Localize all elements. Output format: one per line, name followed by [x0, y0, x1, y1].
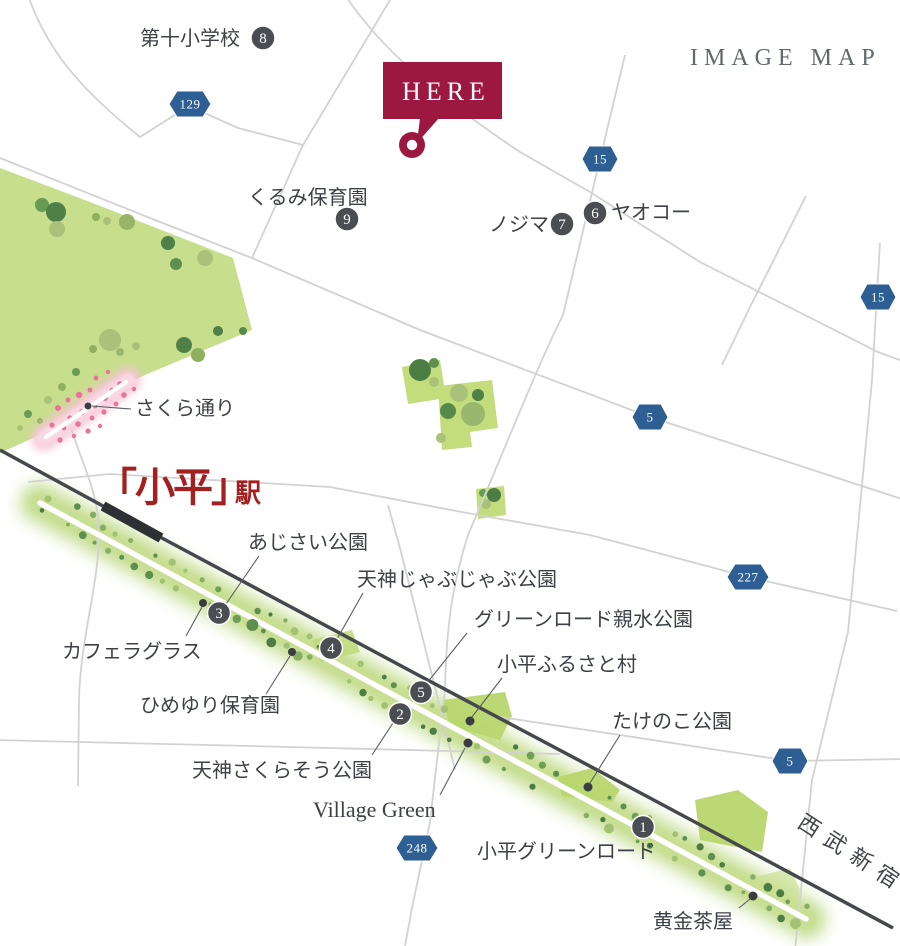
badge-number: 6 — [591, 206, 599, 222]
tree — [213, 326, 223, 336]
pin-ring-hole — [407, 140, 417, 150]
here-marker: HERE — [383, 62, 502, 158]
tree — [191, 348, 205, 362]
tree — [436, 433, 446, 443]
sakura-dot — [90, 416, 95, 421]
poi-dot-village-green — [464, 739, 473, 748]
badge-number: 9 — [343, 212, 351, 228]
route-shield-15a: 15 — [582, 146, 618, 172]
band-tree — [430, 703, 435, 708]
band-tree — [153, 554, 157, 558]
band-tree — [79, 531, 87, 539]
band-tree — [93, 541, 97, 545]
band-tree — [764, 883, 773, 892]
badge-number: 1 — [639, 820, 647, 836]
band-tree — [307, 654, 313, 660]
leader-line — [266, 656, 290, 694]
poi-label-tenjin-sakuraso-park: 天神さくらそう公園 — [192, 759, 372, 782]
tree — [429, 358, 439, 368]
band-tree — [359, 689, 366, 696]
band-tree — [131, 563, 139, 571]
labels: 第十小学校 くるみ保育園 ノジマ ヤオコー さくら通り あじさい公園 天神じゃぶ… — [62, 27, 900, 933]
poi-label-ajisai-park: あじさい公園 — [248, 532, 368, 554]
sakura-dot — [85, 428, 90, 433]
band-tree — [173, 585, 179, 591]
route-shield-129: 129 — [169, 91, 211, 117]
route-shield-5a: 5 — [632, 404, 668, 430]
band-tree — [266, 638, 276, 648]
image-map: 129 15 15 5 227 5 248 — [0, 0, 900, 946]
poi-label-kurumi-nursery: くるみ保育園 — [248, 186, 368, 209]
sakura-dot — [49, 422, 54, 427]
tree — [119, 214, 135, 230]
poi-label-ogon-chaya: 黄金茶屋 — [653, 910, 733, 933]
band-tree — [421, 724, 426, 729]
band-tree — [777, 915, 785, 923]
band-tree — [246, 619, 258, 631]
band-tree — [430, 728, 437, 735]
band-tree — [502, 767, 506, 771]
sakura-dot — [88, 388, 93, 393]
band-tree — [105, 548, 111, 554]
shield-number: 5 — [647, 410, 654, 425]
sakura-dot — [121, 392, 127, 398]
tree — [72, 368, 80, 376]
band-tree — [291, 627, 299, 635]
badge-1: 1 — [632, 816, 655, 839]
band-tree — [368, 696, 373, 701]
station-suffix: 駅 — [235, 479, 261, 508]
badge-number: 5 — [417, 685, 425, 701]
band-tree — [608, 796, 612, 800]
poi-label-himeyuri-nursery: ひめゆり保育園 — [140, 694, 280, 717]
poi-dot-cafe — [199, 599, 207, 607]
band-tree — [160, 579, 165, 584]
band-tree — [529, 784, 535, 790]
small-parks — [402, 358, 506, 519]
band-tree — [74, 503, 81, 510]
band-tree — [268, 612, 272, 616]
band-tree — [621, 804, 627, 810]
band-tree — [474, 743, 480, 749]
street-label-kodaira-green-road: 小平グリーンロード — [477, 840, 656, 863]
tree — [89, 345, 97, 353]
tree — [197, 250, 213, 266]
band-tree — [112, 532, 117, 537]
poi-dot-takenoko — [584, 783, 593, 792]
shield-number: 227 — [738, 570, 759, 585]
tree — [44, 396, 52, 404]
poi-label-tenjin-jabujabu-park: 天神じゃぶじゃぶ公園 — [357, 568, 557, 591]
sakura-dot — [72, 434, 76, 438]
tree — [99, 329, 121, 351]
band-tree — [698, 869, 705, 876]
band-tree — [100, 525, 106, 531]
shield-number: 129 — [180, 97, 201, 112]
badge-number: 3 — [215, 606, 223, 622]
badge-3: 3 — [208, 602, 231, 625]
tree — [472, 389, 484, 401]
band-tree — [750, 874, 756, 880]
badge-5: 5 — [410, 681, 433, 704]
tree — [116, 348, 124, 356]
badge-6: 6 — [583, 201, 607, 225]
badge-number: 7 — [558, 217, 566, 233]
band-tree — [382, 675, 387, 680]
band-tree — [697, 843, 704, 850]
band-tree — [790, 918, 801, 929]
map-canvas: 129 15 15 5 227 5 248 — [0, 0, 900, 946]
band-tree — [604, 824, 614, 834]
route-shield-227: 227 — [727, 564, 769, 590]
band-tree — [233, 615, 241, 623]
tree — [49, 221, 65, 237]
poi-label-cafe-lagrass: カフェラグラス — [62, 640, 202, 663]
band-tree — [776, 889, 784, 897]
route-shield-5b: 5 — [772, 748, 808, 774]
badge-8: 8 — [251, 26, 275, 50]
road — [28, 0, 303, 145]
band-tree — [168, 559, 175, 566]
tree — [409, 359, 431, 381]
poi-dot-sakura — [85, 403, 92, 410]
band-tree — [682, 836, 687, 841]
sakura-dot — [57, 437, 62, 442]
sakura-dot — [114, 402, 119, 407]
tree — [161, 236, 175, 250]
band-tree — [708, 853, 715, 860]
band-tree — [90, 512, 96, 518]
tree — [58, 383, 66, 391]
band-tree — [553, 771, 559, 777]
band-tree — [719, 862, 725, 868]
badge-2: 2 — [389, 703, 412, 726]
band-tree — [483, 756, 491, 764]
tree — [487, 488, 501, 502]
poi-label-village-green: Village Green — [313, 797, 436, 822]
tree — [17, 425, 23, 431]
poi-label-kodaira-furusato-village: 小平ふるさと村 — [497, 653, 637, 676]
band-tree — [66, 523, 70, 527]
band-tree — [391, 682, 397, 688]
band-tree — [261, 629, 266, 634]
band-tree — [804, 904, 809, 909]
band-tree — [672, 831, 678, 837]
band-tree — [45, 496, 52, 503]
band-tree — [200, 577, 205, 582]
band-tree — [725, 884, 732, 891]
band-tree — [119, 555, 124, 560]
sakura-dot — [106, 370, 110, 374]
tree — [176, 337, 192, 353]
poi-label-yaoko: ヤオコー — [611, 202, 691, 224]
station-name: 「小平」 — [97, 465, 249, 510]
band-tree — [357, 661, 363, 667]
tree — [103, 217, 111, 225]
band-tree — [283, 618, 287, 622]
badge-number: 8 — [259, 31, 267, 47]
shield-number: 15 — [593, 152, 607, 167]
tree — [46, 202, 66, 222]
band-tree — [347, 679, 351, 683]
band-tree — [584, 813, 589, 818]
tree — [450, 384, 468, 402]
band-tree — [672, 856, 678, 862]
sakura-dot — [66, 398, 71, 403]
shield-number: 248 — [407, 841, 428, 856]
sakura-dot — [98, 424, 102, 428]
band-tree — [600, 817, 605, 822]
band-tree — [183, 569, 187, 573]
poi-dot-chaya — [749, 892, 758, 901]
tree — [24, 410, 32, 418]
band-tree — [284, 643, 290, 649]
route-shield-248: 248 — [396, 835, 438, 861]
sakura-dot — [132, 387, 136, 391]
tree — [170, 258, 182, 270]
poi-dot-himeyuri — [288, 648, 296, 656]
badge-number: 4 — [327, 641, 335, 657]
map-title: IMAGE MAP — [690, 45, 881, 71]
band-tree — [254, 608, 260, 614]
band-tree — [539, 762, 546, 769]
tree — [440, 403, 456, 419]
railway — [0, 450, 893, 928]
band-tree — [513, 744, 518, 749]
band-tree — [145, 571, 153, 579]
poi-label-nojima: ノジマ — [489, 214, 549, 236]
badge-number: 2 — [396, 707, 404, 723]
badge-9: 9 — [335, 207, 359, 231]
here-label: HERE — [402, 77, 490, 106]
band-tree — [766, 905, 772, 911]
street-label-sakura: さくら通り — [135, 397, 235, 420]
poi-label-greenroad-shinsui-park: グリーンロード親水公園 — [474, 608, 693, 631]
band-tree — [40, 508, 45, 513]
tree — [429, 377, 439, 387]
sakura-dot — [55, 405, 61, 411]
sakura-dot — [101, 409, 106, 414]
sakura-dot — [75, 421, 81, 427]
station-label: 「小平」 駅 — [97, 465, 261, 510]
sakura-dot — [94, 376, 99, 381]
poi-dot-furusato — [466, 717, 475, 726]
tree — [461, 402, 485, 426]
band-tree — [527, 752, 535, 760]
shield-number: 5 — [787, 754, 794, 769]
tree — [92, 213, 100, 221]
shield-number: 15 — [871, 290, 885, 305]
tree — [239, 327, 247, 335]
poi-label-takenoko-park: たけのこ公園 — [612, 711, 732, 733]
badge-4: 4 — [320, 637, 343, 660]
band-tree — [128, 538, 133, 543]
band-tree — [741, 890, 745, 894]
band-tree — [307, 633, 313, 639]
badge-7: 7 — [550, 212, 574, 236]
band-tree — [215, 586, 221, 592]
band-tree — [441, 705, 448, 712]
tree — [132, 342, 140, 350]
poi-label-daiju-elementary: 第十小学校 — [140, 27, 240, 50]
band-tree — [381, 702, 388, 709]
band-tree — [447, 738, 452, 743]
band-tree — [785, 900, 790, 905]
sakura-dot — [76, 392, 82, 398]
tree — [37, 418, 43, 424]
route-shield-15b: 15 — [860, 284, 896, 310]
